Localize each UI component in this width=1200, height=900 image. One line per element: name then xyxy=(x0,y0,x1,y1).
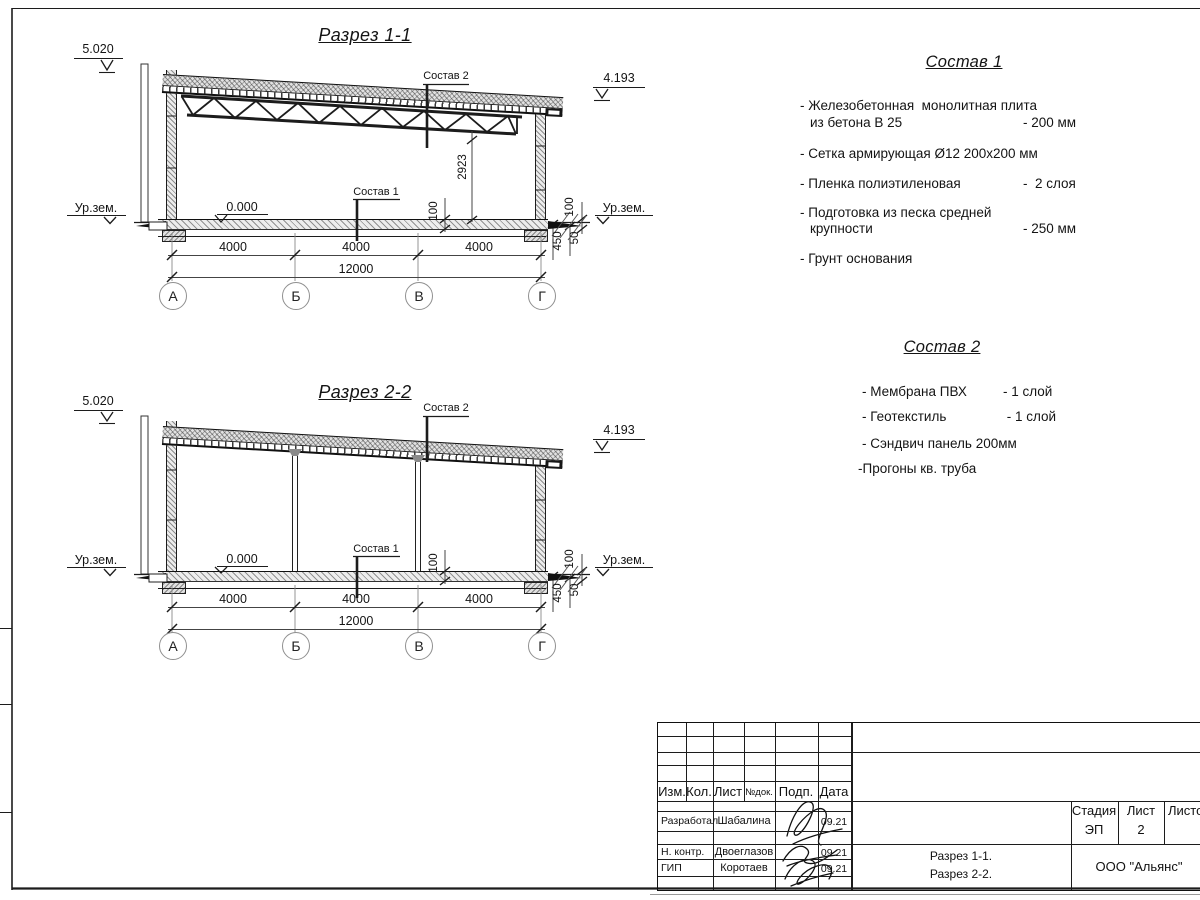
section1-span-dim-2: 4000 xyxy=(342,241,370,254)
section1-axis-v: В xyxy=(405,282,433,310)
tb-line xyxy=(658,876,851,877)
tb-line xyxy=(851,723,853,890)
tb-line xyxy=(818,723,819,890)
tb-line xyxy=(713,723,714,890)
composition1-item1-line1: - Железобетонная монолитная плита xyxy=(800,99,1037,113)
tb-line xyxy=(658,801,1200,802)
section1-dim-found-depth: 450 xyxy=(552,231,564,250)
tb-header-list: Лист xyxy=(714,784,742,799)
axis-label: В xyxy=(414,288,423,304)
section1-dim-floor-mid: 100 xyxy=(428,201,440,220)
composition1-item1-line2: из бетона В 25 xyxy=(810,116,902,130)
section1-axis-b: Б xyxy=(282,282,310,310)
composition1-item1-value: - 200 мм xyxy=(1023,116,1076,130)
axis-label: Б xyxy=(291,288,300,304)
section2-axis-a: А xyxy=(159,632,187,660)
tb-role-3: ГИП xyxy=(661,862,682,874)
composition2-item2: - Геотекстиль xyxy=(862,410,946,424)
tb-header-kol: Кол. xyxy=(686,784,712,799)
section1-span-dim-1: 4000 xyxy=(219,241,247,254)
composition2-item2-value: - 1 слой xyxy=(1003,410,1056,424)
composition2-item3: - Сэндвич панель 200мм xyxy=(862,437,1017,451)
section2-ground-label-left: Ур.зем. xyxy=(75,554,117,567)
composition2-item1: - Мембрана ПВХ xyxy=(862,385,967,399)
section1-dim-found-toe: 50 xyxy=(569,232,581,245)
tb-header-dok: №док. xyxy=(745,787,773,798)
tb-stage-label: Стадия xyxy=(1072,803,1116,818)
tb-doc-line-2: Разрез 2-2. xyxy=(930,867,992,881)
section1-span-dim-3: 4000 xyxy=(465,241,493,254)
tb-sheets-label: Листов xyxy=(1168,803,1200,818)
tb-role-1: Разработал xyxy=(661,815,718,827)
section2-span-dim-1: 4000 xyxy=(219,593,247,606)
section2-total-dim: 12000 xyxy=(339,615,374,628)
section1-ground-label-left: Ур.зем. xyxy=(75,202,117,215)
section1-elev-top-right: 4.193 xyxy=(603,72,634,85)
drawing-sheet: Разрез 1-1 5.020 4.193 Состав 2 2923 Сос… xyxy=(0,0,1200,900)
axis-label: Б xyxy=(291,638,300,654)
tb-name-3: Коротаев xyxy=(720,862,768,874)
tb-company: ООО "Альянс" xyxy=(1096,859,1183,874)
tb-name-1: Шабалина xyxy=(717,815,770,827)
section2-dim-found-toe: 50 xyxy=(569,584,581,597)
composition1-item2: - Сетка армирующая Ø12 200х200 мм xyxy=(800,147,1038,161)
composition2-item1-value: - 1 слой xyxy=(1003,385,1052,399)
section2-title: Разрез 2-2 xyxy=(318,383,411,402)
tb-name-2: Двоеглазов xyxy=(715,846,773,858)
axis-label: Г xyxy=(538,638,546,654)
tb-line xyxy=(658,859,851,860)
section2-axis-b: Б xyxy=(282,632,310,660)
section1-elev-zero: 0.000 xyxy=(226,201,257,214)
section1-dim-floor-right: 100 xyxy=(564,197,576,216)
section2-elev-top-left: 5.020 xyxy=(82,395,113,408)
composition2-title: Состав 2 xyxy=(904,339,981,356)
section2-span-dim-2: 4000 xyxy=(342,593,370,606)
tb-header-izm: Изм. xyxy=(658,784,686,799)
composition1-item4-line2: крупности xyxy=(810,222,873,236)
composition1-item3-value: - 2 слоя xyxy=(1023,177,1076,191)
tb-line xyxy=(658,781,851,782)
tb-header-podp: Подп. xyxy=(779,784,814,799)
tb-date-2: 09.21 xyxy=(821,847,847,859)
tb-line xyxy=(658,736,851,737)
composition1-item4-value: - 250 мм xyxy=(1023,222,1076,236)
tb-line xyxy=(658,831,851,832)
tb-line xyxy=(658,765,851,766)
section2-ground-label-right: Ур.зем. xyxy=(603,554,645,567)
tb-header-data: Дата xyxy=(820,784,849,799)
section2-axis-v: В xyxy=(405,632,433,660)
tb-doc-line-1: Разрез 1-1. xyxy=(930,849,992,863)
tb-line xyxy=(775,723,776,890)
section2-dim-found-depth: 450 xyxy=(552,583,564,602)
section1-dim-truss-height: 2923 xyxy=(457,154,469,180)
section1-total-dim: 12000 xyxy=(339,263,374,276)
tb-date-1: 09.21 xyxy=(821,816,847,828)
tb-line xyxy=(1118,801,1119,844)
composition1-item3: - Пленка полиэтиленовая xyxy=(800,177,961,191)
section2-elev-top-right: 4.193 xyxy=(603,424,634,437)
axis-label: А xyxy=(168,638,177,654)
section1-title: Разрез 1-1 xyxy=(318,26,411,45)
section1-axis-a: А xyxy=(159,282,187,310)
composition1-item4-line1: - Подготовка из песка средней xyxy=(800,206,991,220)
section1-leader-floor-label: Состав 1 xyxy=(353,187,399,199)
title-block: Изм. Кол. Лист №док. Подп. Дата Разработ… xyxy=(657,722,1200,891)
section2-leader-floor-label: Состав 1 xyxy=(353,544,399,556)
tb-sheet-value: 2 xyxy=(1137,822,1144,837)
section2-elev-zero: 0.000 xyxy=(226,553,257,566)
section2-span-dim-3: 4000 xyxy=(465,593,493,606)
section1-elev-top-left: 5.020 xyxy=(82,43,113,56)
section2-leader-roof-label: Состав 2 xyxy=(423,403,469,415)
composition1-title: Состав 1 xyxy=(926,54,1003,71)
axis-label: В xyxy=(414,638,423,654)
section1-leader-roof-label: Состав 2 xyxy=(423,71,469,83)
tb-line xyxy=(658,811,851,812)
axis-label: А xyxy=(168,288,177,304)
tb-role-2: Н. контр. xyxy=(661,846,704,858)
composition2-item4: -Прогоны кв. труба xyxy=(858,462,976,476)
section1-axis-g: Г xyxy=(528,282,556,310)
axis-label: Г xyxy=(538,288,546,304)
tb-stage-value: ЭП xyxy=(1085,822,1104,837)
section1-ground-label-right: Ур.зем. xyxy=(603,202,645,215)
tb-line xyxy=(1164,801,1165,844)
tb-line xyxy=(658,752,1200,753)
section2-axis-g: Г xyxy=(528,632,556,660)
tb-sheet-label: Лист xyxy=(1127,803,1155,818)
tb-date-3: 09.21 xyxy=(821,863,847,875)
section2-dim-floor-right: 100 xyxy=(564,549,576,568)
composition1-item5: - Грунт основания xyxy=(800,252,912,266)
section2-dim-floor-mid: 100 xyxy=(428,553,440,572)
